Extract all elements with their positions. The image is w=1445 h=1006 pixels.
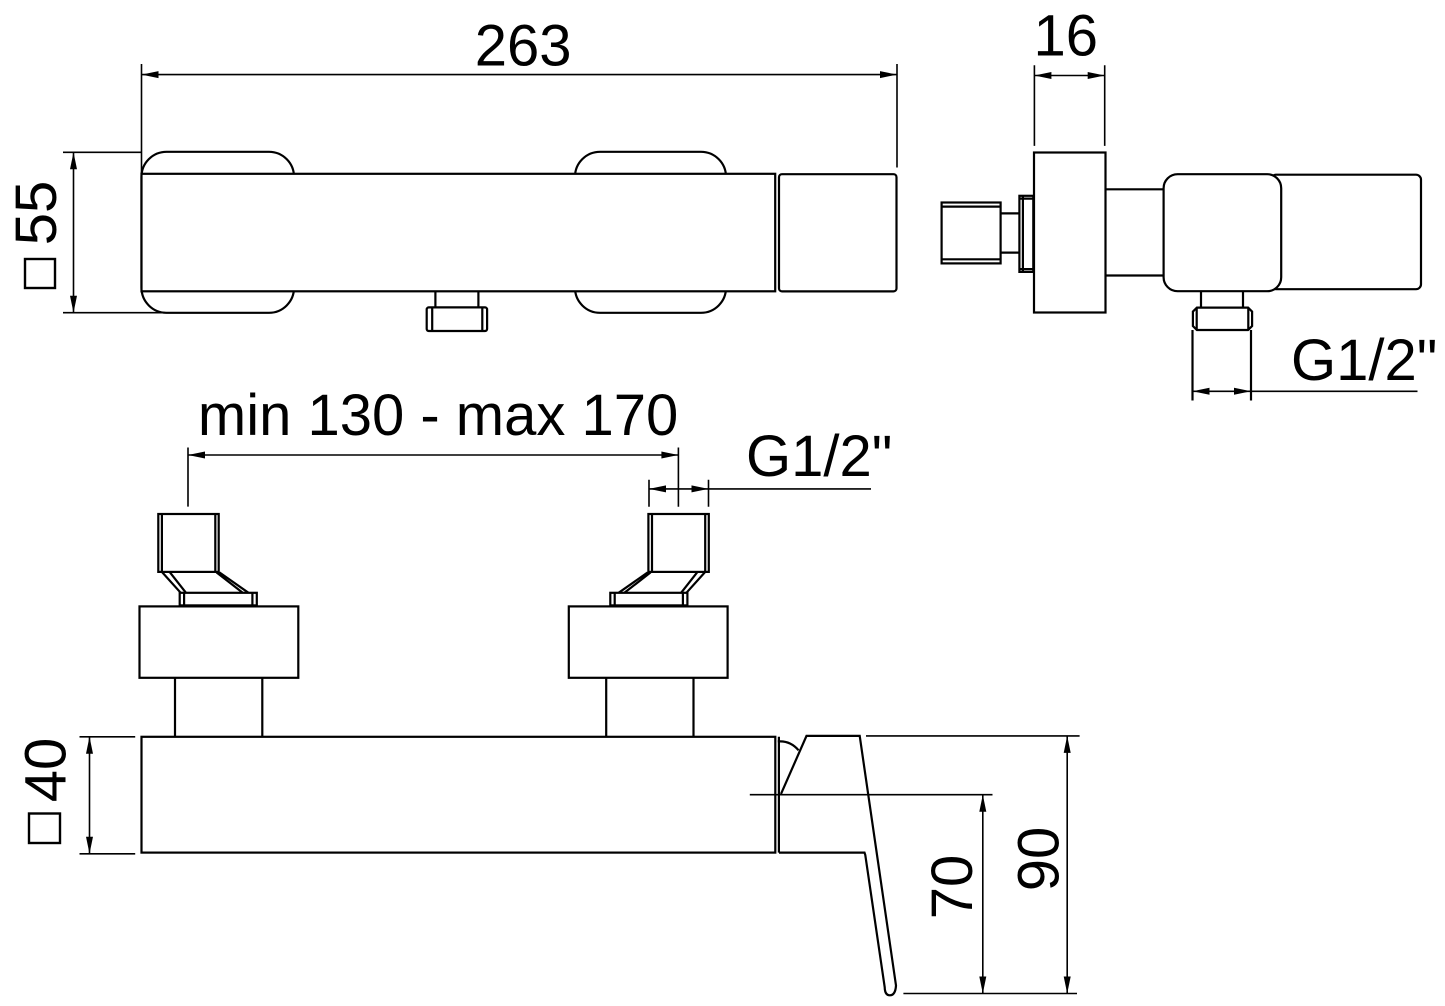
svg-text:55: 55 — [4, 181, 69, 246]
svg-text:G1/2": G1/2" — [746, 424, 892, 489]
svg-text:90: 90 — [1007, 827, 1072, 892]
svg-text:16: 16 — [1034, 4, 1099, 69]
svg-text:G1/2": G1/2" — [1291, 328, 1437, 393]
svg-text:263: 263 — [475, 14, 572, 79]
svg-text:70: 70 — [920, 855, 985, 920]
svg-text:min 130 - max 170: min 130 - max 170 — [198, 383, 678, 448]
svg-text:40: 40 — [14, 738, 79, 803]
